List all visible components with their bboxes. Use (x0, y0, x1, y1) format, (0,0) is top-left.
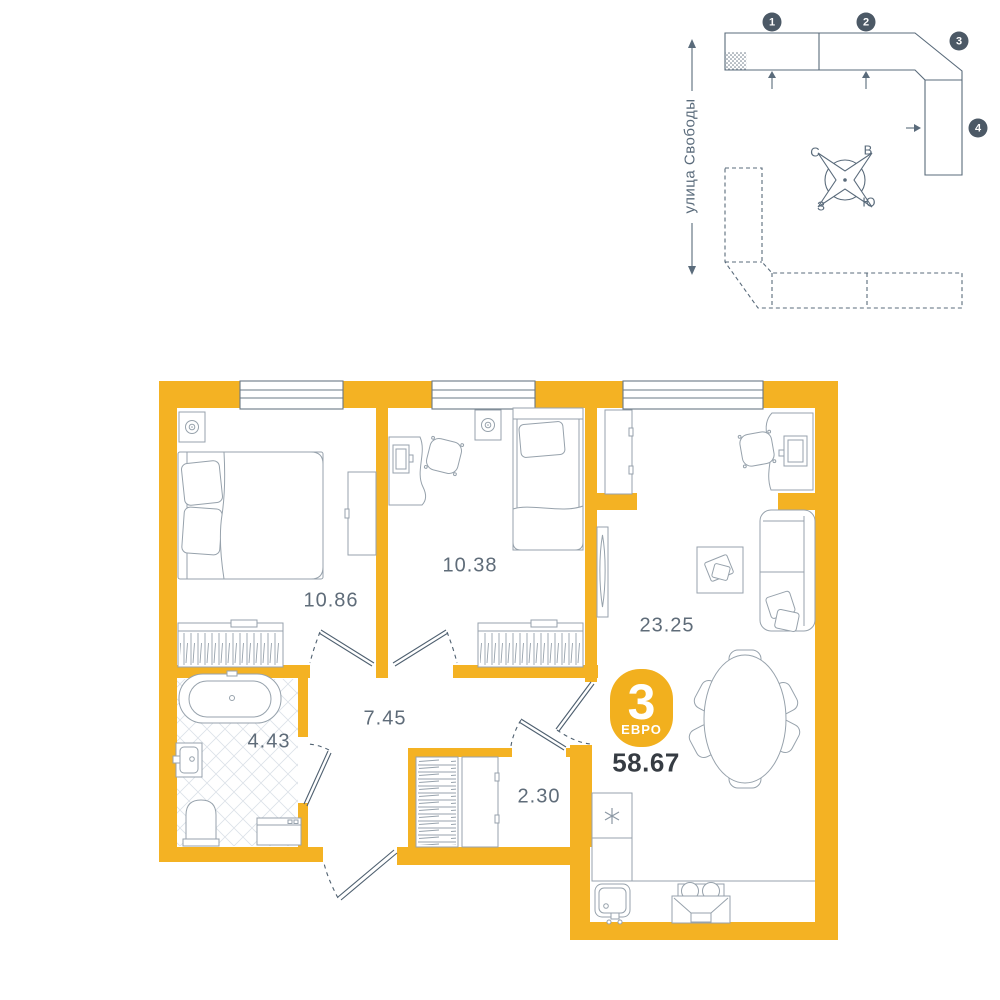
tv (597, 527, 608, 617)
bathroom (173, 671, 301, 846)
plan-drawing (0, 0, 1000, 1000)
compass-south-label: Ю (862, 195, 875, 210)
entrance-arrows (768, 71, 921, 132)
bedroom-1 (178, 412, 376, 667)
site-plan (688, 33, 962, 308)
kitchen-sink (595, 884, 630, 924)
windows (240, 381, 763, 409)
rooms-count: 3 (628, 681, 656, 724)
dining-set (686, 650, 802, 788)
room-area-bedroom-1: 10.86 (303, 590, 358, 613)
closet (416, 757, 499, 847)
window (623, 381, 763, 409)
layout-type-label: ЕВРО (621, 722, 662, 737)
ceiling-light-icon (475, 410, 501, 440)
room-area-living-kitchen: 23.25 (639, 615, 694, 638)
wardrobe (178, 620, 283, 667)
wardrobe (478, 620, 583, 667)
building-number-3: 3 (950, 32, 969, 51)
living-kitchen (592, 410, 815, 924)
door-closet (511, 719, 566, 750)
sofa (760, 510, 815, 632)
compass-west-label: З (817, 199, 825, 214)
building-number-4: 4 (969, 119, 988, 138)
compass-north-label: С (810, 145, 819, 160)
door-entry (324, 850, 397, 900)
window (240, 381, 343, 409)
dining-table (704, 655, 786, 783)
total-area: 58.67 (612, 748, 680, 779)
site-building-solid (725, 33, 962, 175)
kitchen-stove (672, 883, 730, 924)
wardrobe-tall (605, 410, 633, 494)
kitchen-counter (592, 793, 815, 881)
door-bathroom (304, 744, 331, 806)
room-area-bathroom: 4.43 (248, 731, 291, 754)
door-bedroom-1 (310, 630, 374, 666)
desk (389, 437, 426, 505)
building-number-2: 2 (857, 13, 876, 32)
building-number-1: 1 (763, 13, 782, 32)
room-area-closet: 2.30 (518, 786, 561, 809)
bathroom-sink (173, 743, 202, 777)
compass-east-label: В (864, 143, 873, 158)
bedroom-2 (389, 408, 583, 667)
room-area-bedroom-2: 10.38 (442, 555, 497, 578)
double-bed (178, 452, 323, 579)
dresser (345, 472, 376, 555)
apartment-location-marker (726, 52, 747, 70)
door-bedroom-2 (393, 630, 457, 666)
floorplan-page: улица Свободы 1 2 3 4 С В З Ю 10.86 10.3… (0, 0, 1000, 1000)
room-area-hallway: 7.45 (364, 708, 407, 731)
washing-machine (257, 818, 301, 845)
desk-chair (738, 430, 776, 468)
desk-chair (424, 436, 464, 476)
coffee-table (697, 547, 743, 593)
apartment-type-badge: 3 ЕВРО (610, 669, 673, 747)
bathtub (179, 671, 281, 723)
window (432, 381, 535, 409)
cabinet (462, 757, 499, 847)
door-living (556, 682, 594, 744)
single-bed (513, 408, 583, 550)
toilet (183, 800, 219, 846)
street-label: улица Свободы (682, 98, 699, 213)
wardrobe (416, 757, 458, 847)
ceiling-light-icon (179, 412, 205, 442)
